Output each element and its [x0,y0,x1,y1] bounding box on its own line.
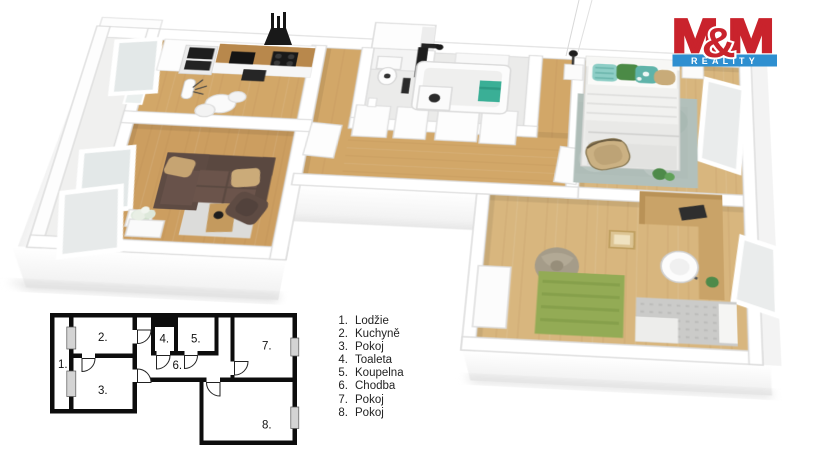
svg-text:2.: 2. [98,332,108,344]
svg-text:3.: 3. [98,385,108,397]
svg-text:&: & [702,20,736,66]
svg-text:6.: 6. [173,360,183,372]
svg-text:1.: 1. [58,359,68,371]
svg-text:7.: 7. [262,341,272,353]
svg-text:5.: 5. [191,334,201,346]
svg-text:8.: 8. [262,420,272,432]
svg-text:4.: 4. [160,334,170,346]
